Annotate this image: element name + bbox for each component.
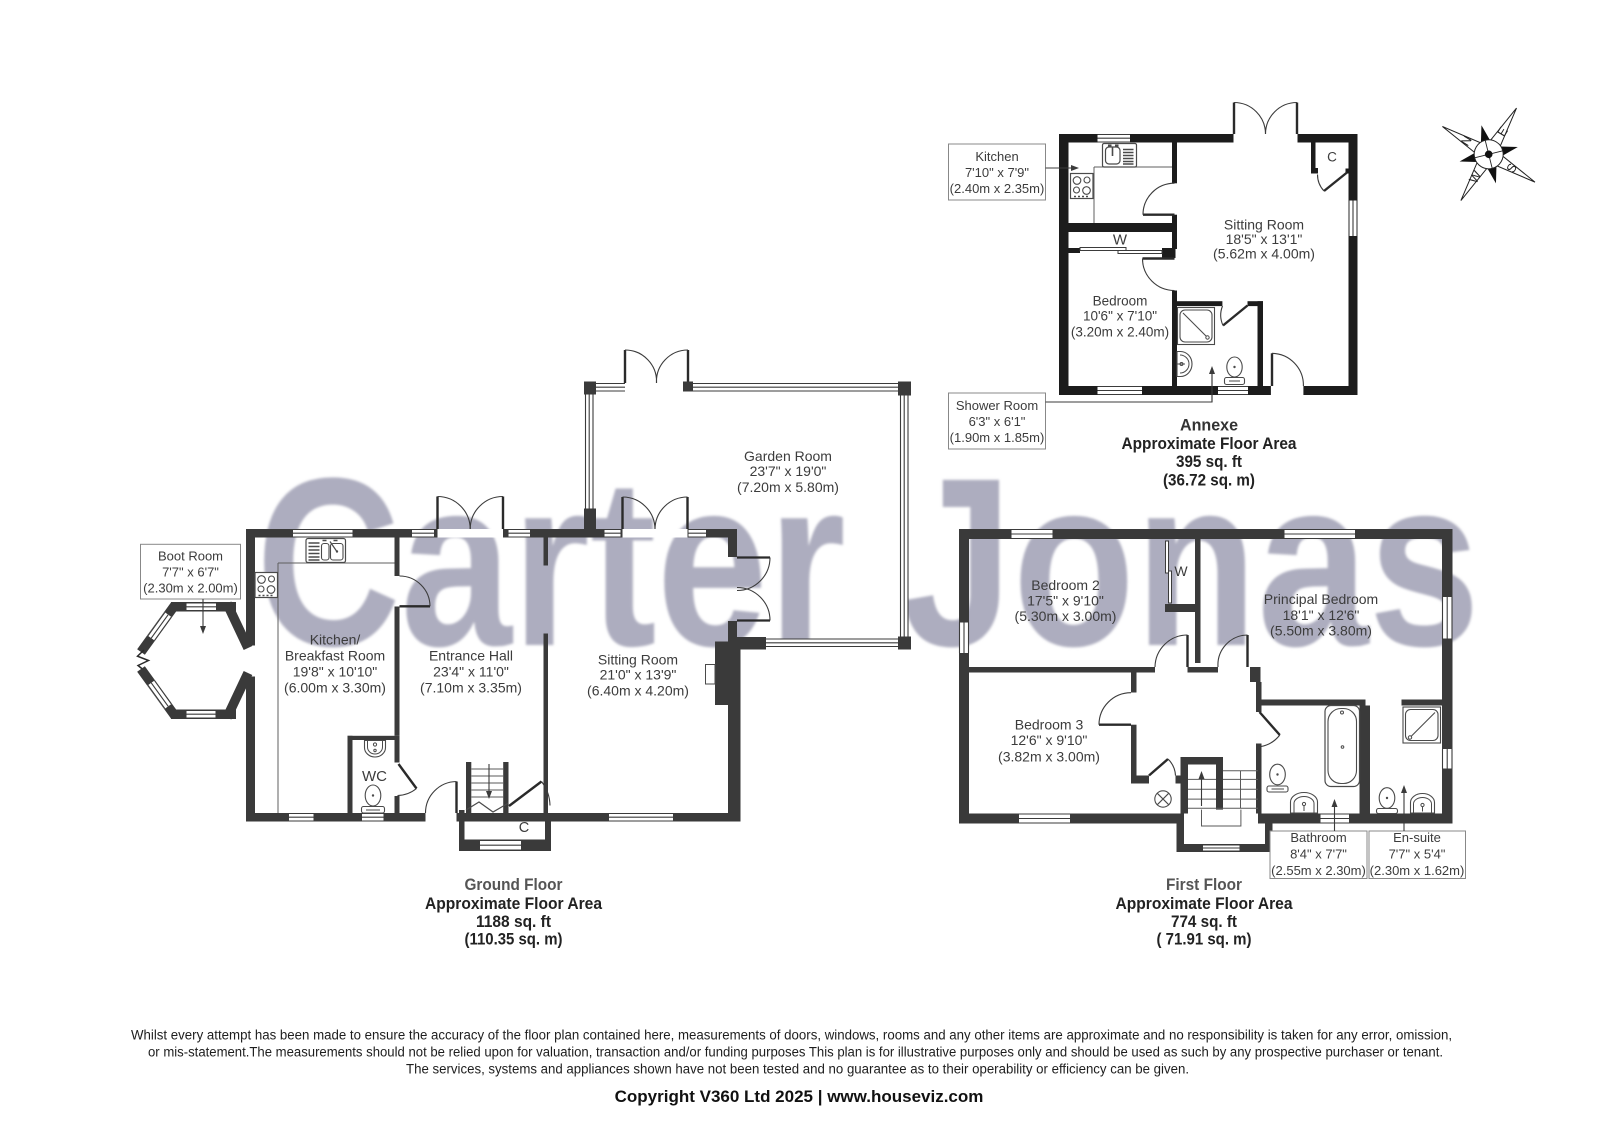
svg-text:(2.55m x 2.30m): (2.55m x 2.30m) <box>1271 863 1366 878</box>
svg-text:(2.30m x 2.00m): (2.30m x 2.00m) <box>143 581 238 596</box>
svg-text:(5.30m x 3.00m): (5.30m x 3.00m) <box>1015 608 1117 624</box>
svg-text:First Floor: First Floor <box>1166 876 1243 894</box>
svg-text:En-suite: En-suite <box>1393 830 1441 845</box>
svg-text:7'10" x 7'9": 7'10" x 7'9" <box>965 165 1029 180</box>
svg-text:12'6" x 9'10": 12'6" x 9'10" <box>1011 732 1088 748</box>
svg-text:Bedroom 3: Bedroom 3 <box>1015 717 1084 733</box>
svg-text:(36.72 sq. m): (36.72 sq. m) <box>1163 472 1255 490</box>
svg-text:(6.00m x 3.30m): (6.00m x 3.30m) <box>284 680 386 696</box>
svg-text:774 sq. ft: 774 sq. ft <box>1171 913 1237 931</box>
svg-text:Boot Room: Boot Room <box>158 549 223 564</box>
svg-text:1188 sq. ft: 1188 sq. ft <box>476 913 551 931</box>
svg-text:21'0" x 13'9": 21'0" x 13'9" <box>600 667 677 683</box>
svg-text:Kitchen/: Kitchen/ <box>310 632 361 648</box>
svg-text:(2.30m x 1.62m): (2.30m x 1.62m) <box>1370 863 1465 878</box>
svg-text:Ground Floor: Ground Floor <box>465 876 564 894</box>
svg-text:Entrance Hall: Entrance Hall <box>429 648 513 664</box>
svg-text:8'4" x 7'7": 8'4" x 7'7" <box>1290 847 1347 862</box>
svg-text:W: W <box>1113 232 1128 249</box>
svg-text:The services, systems and appl: The services, systems and appliances sho… <box>406 1062 1189 1077</box>
svg-text:(1.90m x 1.85m): (1.90m x 1.85m) <box>950 430 1045 445</box>
svg-text:Sitting Room: Sitting Room <box>598 652 678 668</box>
svg-text:(3.20m x 2.40m): (3.20m x 2.40m) <box>1071 325 1169 340</box>
svg-text:23'4" x 11'0": 23'4" x 11'0" <box>433 664 509 680</box>
svg-text:Shower Room: Shower Room <box>956 398 1038 413</box>
svg-text:C: C <box>519 820 529 836</box>
svg-text:(3.82m x 3.00m): (3.82m x 3.00m) <box>998 749 1100 765</box>
svg-text:Garden Room: Garden Room <box>744 448 832 464</box>
svg-text:(7.20m x 5.80m): (7.20m x 5.80m) <box>737 479 839 495</box>
svg-text:(110.35 sq. m): (110.35 sq. m) <box>465 931 563 949</box>
svg-text:18'1" x 12'6": 18'1" x 12'6" <box>1283 607 1360 623</box>
svg-text:Whilst every attempt has been: Whilst every attempt has been made to en… <box>131 1028 1452 1043</box>
svg-text:( 71.91 sq. m): ( 71.91 sq. m) <box>1157 931 1252 949</box>
svg-text:Kitchen: Kitchen <box>975 149 1018 164</box>
svg-text:395 sq. ft: 395 sq. ft <box>1176 453 1242 471</box>
svg-text:(6.40m x 4.20m): (6.40m x 4.20m) <box>587 683 689 699</box>
svg-text:(5.50m x 3.80m): (5.50m x 3.80m) <box>1270 623 1372 639</box>
svg-text:(7.10m x 3.35m): (7.10m x 3.35m) <box>420 680 522 696</box>
svg-text:Breakfast Room: Breakfast Room <box>285 648 385 664</box>
svg-text:Approximate Floor Area: Approximate Floor Area <box>1122 435 1298 453</box>
svg-text:or mis-statement.The measureme: or mis-statement.The measurements should… <box>148 1045 1443 1060</box>
svg-text:Approximate Floor Area: Approximate Floor Area <box>1116 895 1294 913</box>
svg-text:23'7" x 19'0": 23'7" x 19'0" <box>750 463 827 479</box>
svg-text:(5.62m x 4.00m): (5.62m x 4.00m) <box>1213 246 1315 262</box>
svg-text:17'5" x 9'10": 17'5" x 9'10" <box>1027 593 1104 609</box>
svg-text:7'7" x 6'7": 7'7" x 6'7" <box>162 564 219 579</box>
svg-text:Bedroom: Bedroom <box>1093 294 1148 309</box>
svg-text:W: W <box>1174 563 1188 579</box>
svg-text:Bedroom 2: Bedroom 2 <box>1031 577 1100 593</box>
svg-text:7'7" x 5'4": 7'7" x 5'4" <box>1389 847 1446 862</box>
svg-text:Annexe: Annexe <box>1180 417 1238 435</box>
svg-text:6'3" x 6'1": 6'3" x 6'1" <box>969 414 1026 429</box>
svg-text:Bathroom: Bathroom <box>1290 830 1346 845</box>
svg-text:10'6" x 7'10": 10'6" x 7'10" <box>1083 309 1157 324</box>
svg-text:19'8" x 10'10": 19'8" x 10'10" <box>293 664 378 680</box>
svg-text:Principal Bedroom: Principal Bedroom <box>1264 591 1378 607</box>
svg-text:Copyright V360 Ltd 2025 | www.: Copyright V360 Ltd 2025 | www.houseviz.c… <box>615 1087 984 1106</box>
svg-text:(2.40m x 2.35m): (2.40m x 2.35m) <box>950 181 1045 196</box>
svg-text:WC: WC <box>362 768 387 785</box>
svg-text:Approximate Floor Area: Approximate Floor Area <box>425 895 603 913</box>
svg-text:C: C <box>1327 150 1337 165</box>
